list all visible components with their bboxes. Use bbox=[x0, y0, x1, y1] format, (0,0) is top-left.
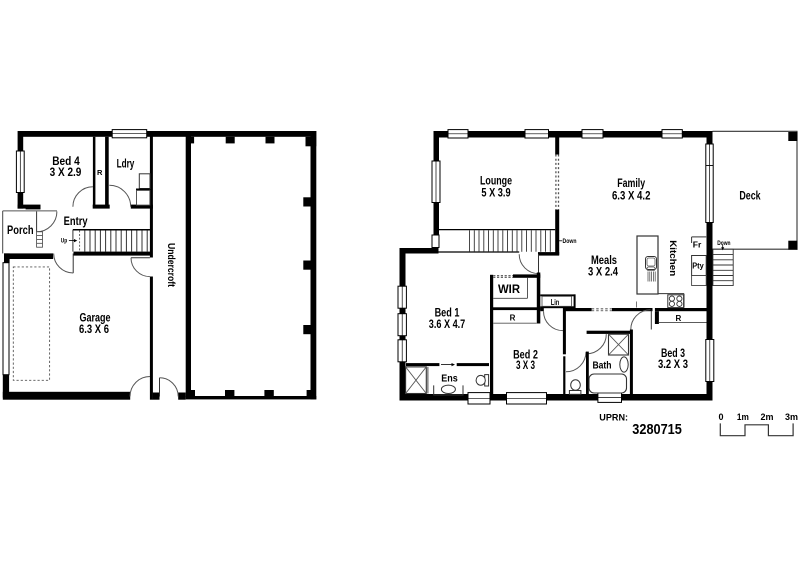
svg-text:Undercroft: Undercroft bbox=[165, 243, 176, 288]
svg-text:6.3 X 6: 6.3 X 6 bbox=[79, 324, 109, 336]
svg-text:R: R bbox=[510, 313, 516, 322]
svg-text:Fr: Fr bbox=[693, 240, 702, 249]
svg-text:3 X 3: 3 X 3 bbox=[516, 360, 535, 372]
svg-text:3.6 X 4.7: 3.6 X 4.7 bbox=[429, 319, 466, 331]
svg-text:Kitchen: Kitchen bbox=[667, 240, 678, 276]
svg-text:UPRN:: UPRN: bbox=[599, 413, 628, 424]
svg-text:Lin: Lin bbox=[551, 298, 560, 307]
svg-text:Deck: Deck bbox=[739, 188, 760, 202]
svg-text:Porch: Porch bbox=[7, 223, 34, 237]
svg-text:Pty: Pty bbox=[692, 261, 704, 270]
svg-text:Ens: Ens bbox=[441, 373, 458, 385]
svg-text:0: 0 bbox=[718, 412, 723, 422]
svg-text:Ldry: Ldry bbox=[117, 157, 135, 171]
svg-text:3.2 X 3: 3.2 X 3 bbox=[658, 359, 688, 371]
svg-text:5 X 3.9: 5 X 3.9 bbox=[481, 188, 510, 200]
svg-text:1m: 1m bbox=[737, 412, 749, 422]
svg-text:Bed 1: Bed 1 bbox=[435, 305, 460, 319]
svg-text:Down: Down bbox=[717, 241, 731, 247]
svg-text:Bath: Bath bbox=[592, 359, 611, 371]
svg-text:R: R bbox=[676, 314, 682, 323]
svg-text:Up: Up bbox=[61, 239, 68, 245]
svg-text:Lounge: Lounge bbox=[480, 174, 512, 188]
svg-text:WIR: WIR bbox=[498, 282, 520, 296]
svg-text:Meals: Meals bbox=[591, 253, 617, 267]
svg-text:6.3 X 4.2: 6.3 X 4.2 bbox=[612, 190, 651, 202]
svg-text:2m: 2m bbox=[761, 412, 774, 422]
svg-text:Bed 3: Bed 3 bbox=[661, 346, 685, 360]
svg-text:3280715: 3280715 bbox=[632, 421, 682, 438]
svg-text:3m: 3m bbox=[785, 412, 798, 422]
svg-text:Entry: Entry bbox=[64, 214, 88, 228]
svg-text:3 X 2.4: 3 X 2.4 bbox=[588, 266, 618, 278]
svg-text:R: R bbox=[97, 168, 103, 177]
svg-text:Garage: Garage bbox=[80, 310, 111, 324]
svg-text:Down: Down bbox=[563, 239, 577, 245]
svg-text:Family: Family bbox=[617, 176, 645, 190]
svg-text:3 X 2.9: 3 X 2.9 bbox=[50, 167, 82, 179]
